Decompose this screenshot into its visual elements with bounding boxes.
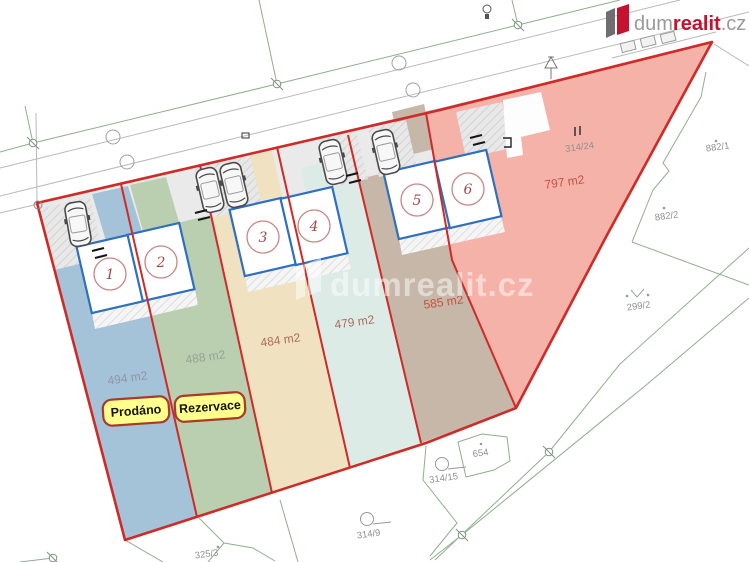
lamp-icon (483, 5, 491, 19)
well-icon (361, 513, 374, 526)
logo-building-icon (617, 4, 629, 35)
logo-building-icon (606, 8, 615, 38)
utility-marker-icon (512, 19, 524, 31)
house-number: 5 (413, 193, 422, 209)
site-plan-page: 1 2 3 4 5 6 494 m2 488 m2 484 m2 (0, 0, 749, 562)
house-number: 3 (259, 230, 268, 246)
parcel-number: 314/15 (428, 471, 458, 486)
parcel-number: 654 (472, 447, 489, 460)
site-plan-map: 1 2 3 4 5 6 494 m2 488 m2 484 m2 (0, 0, 749, 562)
watermark-logo-icon (296, 264, 305, 300)
house-number: 2 (156, 255, 166, 271)
house-number: 6 (464, 182, 473, 198)
utility-marker-icon (27, 137, 39, 149)
parcel-number: 325/3 (194, 547, 219, 561)
parcel-number: 882/2 (654, 209, 679, 223)
parcel-number: 314/9 (356, 527, 381, 541)
parcel-number: 299/2 (626, 299, 651, 313)
tree-icon (106, 130, 120, 144)
tree-icon (392, 56, 406, 70)
watermark-logo-icon (308, 258, 321, 296)
brand-logo[interactable]: dumrealit.cz (606, 4, 746, 38)
watermark-text: dumrealit.cz (330, 266, 535, 303)
logo-wordmark: dumrealit.cz (634, 13, 746, 35)
house-number: 4 (309, 219, 319, 235)
house-number: 1 (106, 267, 115, 283)
parcel-number: 882/1 (705, 140, 730, 154)
well-icon (436, 458, 449, 471)
utility-marker-icon (271, 78, 283, 90)
utility-marker-icon (47, 552, 59, 562)
tree-icon (120, 155, 134, 169)
